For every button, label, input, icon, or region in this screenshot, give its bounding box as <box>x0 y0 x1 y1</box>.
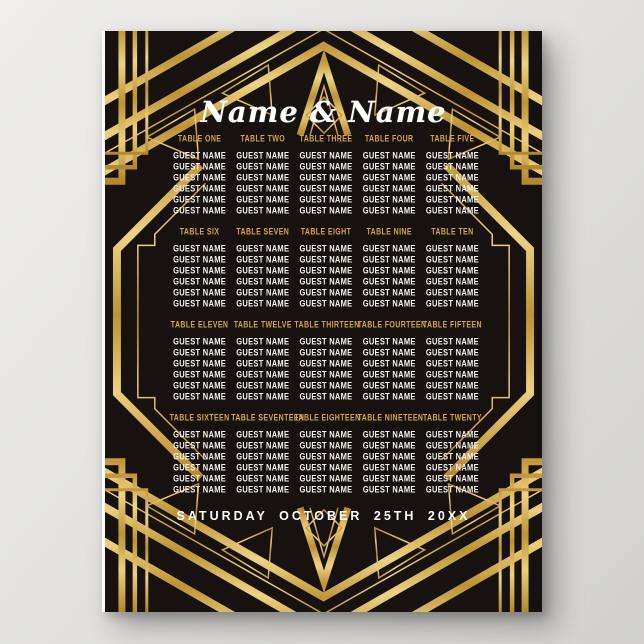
table-label: TABLE SIXTEEN <box>168 414 231 423</box>
table-guests: GUEST NAMEGUEST NAMEGUEST NAMEGUEST NAME… <box>168 429 231 495</box>
table-guests: GUEST NAMEGUEST NAMEGUEST NAMEGUEST NAME… <box>358 336 421 402</box>
table-guests: GUEST NAMEGUEST NAMEGUEST NAMEGUEST NAME… <box>421 243 484 309</box>
guest-name: GUEST NAME <box>358 483 421 497</box>
guest-name: GUEST NAME <box>231 204 294 218</box>
table-guests: GUEST NAMEGUEST NAMEGUEST NAMEGUEST NAME… <box>294 429 357 495</box>
table-block: TABLE TWENTY GUEST NAMEGUEST NAMEGUEST N… <box>421 415 484 495</box>
table-guests: GUEST NAMEGUEST NAMEGUEST NAMEGUEST NAME… <box>421 336 484 402</box>
table-guests: GUEST NAMEGUEST NAMEGUEST NAMEGUEST NAME… <box>294 243 357 309</box>
table-label: TABLE EIGHTEEN <box>294 414 357 423</box>
guest-name: GUEST NAME <box>421 483 484 497</box>
table-label: TABLE FIFTEEN <box>421 321 484 330</box>
table-block: TABLE TEN GUEST NAMEGUEST NAMEGUEST NAME… <box>421 229 484 309</box>
gray-backdrop: Name & Name TABLE ONE GUEST NAMEGUEST NA… <box>0 0 644 644</box>
table-guests: GUEST NAMEGUEST NAMEGUEST NAMEGUEST NAME… <box>358 429 421 495</box>
table-label: TABLE EIGHT <box>294 228 357 237</box>
table-block: TABLE ELEVEN GUEST NAMEGUEST NAMEGUEST N… <box>168 322 231 402</box>
table-block: TABLE TWO GUEST NAMEGUEST NAMEGUEST NAME… <box>231 136 294 216</box>
table-label: TABLE TWO <box>231 135 294 144</box>
table-block: TABLE ONE GUEST NAMEGUEST NAMEGUEST NAME… <box>168 136 231 216</box>
guest-name: GUEST NAME <box>294 483 357 497</box>
table-guests: GUEST NAMEGUEST NAMEGUEST NAMEGUEST NAME… <box>231 336 294 402</box>
table-guests: GUEST NAMEGUEST NAMEGUEST NAMEGUEST NAME… <box>358 243 421 309</box>
guest-name: GUEST NAME <box>231 483 294 497</box>
guest-name: GUEST NAME <box>168 204 231 218</box>
table-label: TABLE FOURTEEN <box>358 321 421 330</box>
table-block: TABLE EIGHT GUEST NAMEGUEST NAMEGUEST NA… <box>294 229 357 309</box>
guest-name: GUEST NAME <box>421 204 484 218</box>
table-guests: GUEST NAMEGUEST NAMEGUEST NAMEGUEST NAME… <box>231 150 294 216</box>
table-block: TABLE FIFTEEN GUEST NAMEGUEST NAMEGUEST … <box>421 322 484 402</box>
guest-name: GUEST NAME <box>168 297 231 311</box>
table-guests: GUEST NAMEGUEST NAMEGUEST NAMEGUEST NAME… <box>168 150 231 216</box>
table-block: TABLE SEVEN GUEST NAMEGUEST NAMEGUEST NA… <box>231 229 294 309</box>
table-block: TABLE SIX GUEST NAMEGUEST NAMEGUEST NAME… <box>168 229 231 309</box>
tables-grid: TABLE ONE GUEST NAMEGUEST NAMEGUEST NAME… <box>168 136 484 495</box>
table-block: TABLE SIXTEEN GUEST NAMEGUEST NAMEGUEST … <box>168 415 231 495</box>
table-guests: GUEST NAMEGUEST NAMEGUEST NAMEGUEST NAME… <box>358 150 421 216</box>
table-label: TABLE ELEVEN <box>168 321 231 330</box>
table-block: TABLE THIRTEEN GUEST NAMEGUEST NAMEGUEST… <box>294 322 357 402</box>
table-guests: GUEST NAMEGUEST NAMEGUEST NAMEGUEST NAME… <box>294 150 357 216</box>
guest-name: GUEST NAME <box>231 390 294 404</box>
table-block: TABLE FOUR GUEST NAMEGUEST NAMEGUEST NAM… <box>358 136 421 216</box>
table-block: TABLE FOURTEEN GUEST NAMEGUEST NAMEGUEST… <box>358 322 421 402</box>
guest-name: GUEST NAME <box>231 297 294 311</box>
table-block: TABLE EIGHTEEN GUEST NAMEGUEST NAMEGUEST… <box>294 415 357 495</box>
table-block: TABLE NINETEEN GUEST NAMEGUEST NAMEGUEST… <box>358 415 421 495</box>
table-label: TABLE THREE <box>294 135 357 144</box>
table-guests: GUEST NAMEGUEST NAMEGUEST NAMEGUEST NAME… <box>421 429 484 495</box>
table-block: TABLE NINE GUEST NAMEGUEST NAMEGUEST NAM… <box>358 229 421 309</box>
guest-name: GUEST NAME <box>358 297 421 311</box>
table-guests: GUEST NAMEGUEST NAMEGUEST NAMEGUEST NAME… <box>421 150 484 216</box>
table-block: TABLE FIVE GUEST NAMEGUEST NAMEGUEST NAM… <box>421 136 484 216</box>
couple-names-title: Name & Name <box>105 95 542 129</box>
guest-name: GUEST NAME <box>358 204 421 218</box>
seating-chart-poster: Name & Name TABLE ONE GUEST NAMEGUEST NA… <box>102 31 542 612</box>
table-guests: GUEST NAMEGUEST NAMEGUEST NAMEGUEST NAME… <box>168 243 231 309</box>
table-guests: GUEST NAMEGUEST NAMEGUEST NAMEGUEST NAME… <box>231 243 294 309</box>
guest-name: GUEST NAME <box>294 390 357 404</box>
table-label: TABLE ONE <box>168 135 231 144</box>
table-guests: GUEST NAMEGUEST NAMEGUEST NAMEGUEST NAME… <box>231 429 294 495</box>
table-guests: GUEST NAMEGUEST NAMEGUEST NAMEGUEST NAME… <box>168 336 231 402</box>
table-label: TABLE TWELVE <box>231 321 294 330</box>
guest-name: GUEST NAME <box>421 390 484 404</box>
guest-name: GUEST NAME <box>421 297 484 311</box>
guest-name: GUEST NAME <box>358 390 421 404</box>
table-label: TABLE SEVEN <box>231 228 294 237</box>
table-label: TABLE TWENTY <box>421 414 484 423</box>
guest-name: GUEST NAME <box>294 204 357 218</box>
table-label: TABLE THIRTEEN <box>294 321 357 330</box>
table-label: TABLE FIVE <box>421 135 484 144</box>
table-block: TABLE SEVENTEEN GUEST NAMEGUEST NAMEGUES… <box>231 415 294 495</box>
guest-name: GUEST NAME <box>168 390 231 404</box>
table-label: TABLE NINE <box>358 228 421 237</box>
poster-content: Name & Name TABLE ONE GUEST NAMEGUEST NA… <box>105 31 542 612</box>
table-guests: GUEST NAMEGUEST NAMEGUEST NAMEGUEST NAME… <box>294 336 357 402</box>
table-block: TABLE THREE GUEST NAMEGUEST NAMEGUEST NA… <box>294 136 357 216</box>
event-date: SATURDAY OCTOBER 25TH 20XX <box>105 509 542 523</box>
table-label: TABLE FOUR <box>358 135 421 144</box>
table-label: TABLE NINETEEN <box>358 414 421 423</box>
guest-name: GUEST NAME <box>294 297 357 311</box>
table-block: TABLE TWELVE GUEST NAMEGUEST NAMEGUEST N… <box>231 322 294 402</box>
guest-name: GUEST NAME <box>168 483 231 497</box>
table-label: TABLE SEVENTEEN <box>231 414 294 423</box>
table-label: TABLE SIX <box>168 228 231 237</box>
table-label: TABLE TEN <box>421 228 484 237</box>
